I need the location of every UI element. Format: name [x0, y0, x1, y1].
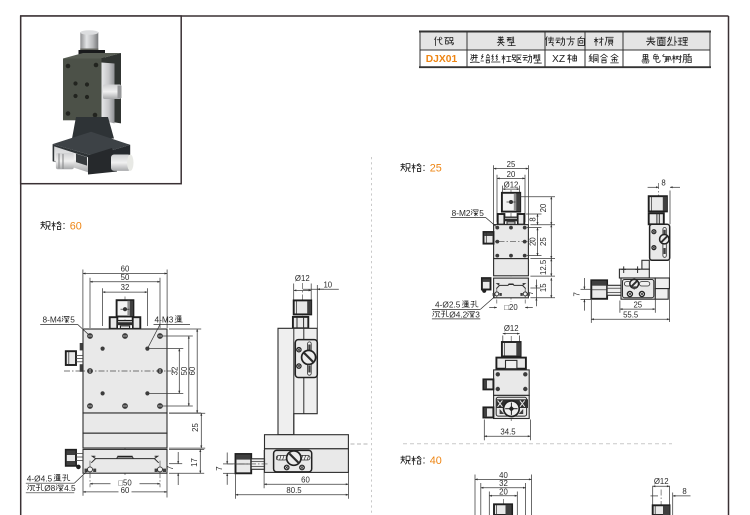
svg-text:60: 60	[301, 476, 310, 485]
svg-text:17: 17	[190, 458, 199, 467]
svg-text::: :	[63, 220, 66, 232]
svg-text:3: 3	[475, 309, 480, 319]
svg-text:4-Ø4.5: 4-Ø4.5	[27, 473, 53, 483]
svg-text:20: 20	[499, 487, 508, 496]
svg-text:32: 32	[121, 283, 130, 292]
svg-text::: :	[423, 455, 426, 467]
svg-text:8: 8	[661, 178, 665, 187]
svg-text:Ø12: Ø12	[295, 274, 310, 283]
svg-text:15: 15	[539, 283, 548, 292]
svg-text:4.5: 4.5	[64, 483, 76, 493]
svg-text:25: 25	[430, 162, 442, 174]
svg-text:25: 25	[539, 237, 548, 246]
svg-text::: :	[423, 162, 426, 174]
svg-text:5: 5	[479, 208, 484, 218]
svg-text:Ø12: Ø12	[504, 181, 519, 190]
svg-text:20: 20	[539, 203, 548, 212]
svg-text:4-M3: 4-M3	[155, 315, 174, 325]
svg-text:8: 8	[682, 487, 686, 496]
svg-text:8: 8	[529, 217, 538, 221]
svg-text:60: 60	[70, 220, 82, 232]
svg-text:20: 20	[529, 237, 538, 246]
svg-text:DJX01: DJX01	[426, 54, 458, 65]
svg-text:40: 40	[430, 455, 442, 467]
svg-text:60: 60	[121, 486, 130, 495]
svg-text:7: 7	[166, 466, 175, 470]
svg-text:32: 32	[170, 367, 179, 376]
svg-text:50: 50	[121, 273, 130, 282]
svg-text:XZ: XZ	[552, 54, 565, 65]
svg-text:5: 5	[70, 315, 75, 325]
svg-text:7: 7	[215, 466, 224, 470]
svg-text:8-M2: 8-M2	[452, 208, 471, 218]
svg-text:7: 7	[573, 292, 582, 296]
svg-text:8-M4: 8-M4	[43, 315, 62, 325]
svg-text:10: 10	[323, 280, 332, 289]
svg-text:60: 60	[188, 366, 197, 375]
svg-text:55.5: 55.5	[623, 311, 639, 320]
svg-text:Ø8: Ø8	[44, 483, 55, 493]
svg-text:Ø12: Ø12	[504, 324, 519, 333]
svg-text:20: 20	[507, 170, 516, 179]
svg-text:25: 25	[191, 423, 200, 432]
svg-text:Ø12: Ø12	[654, 477, 669, 486]
svg-text:4-Ø2.5: 4-Ø2.5	[435, 300, 461, 310]
svg-text:25: 25	[633, 301, 642, 310]
svg-text:80.5: 80.5	[286, 486, 302, 495]
svg-text:12.5: 12.5	[539, 259, 548, 275]
svg-text:□20: □20	[504, 303, 518, 312]
svg-text:34.5: 34.5	[500, 428, 516, 437]
svg-text:25: 25	[507, 160, 516, 169]
svg-text:Ø4.2: Ø4.2	[449, 309, 467, 319]
